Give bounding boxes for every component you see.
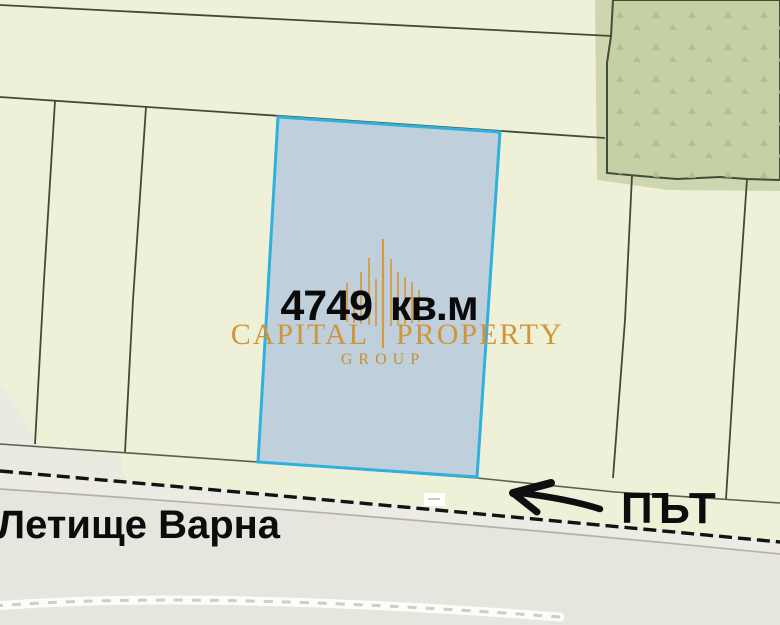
property-map-screenshot: 4749 кв.м CAPITAL PROPERTY GROUP Летище … (0, 0, 780, 625)
road-marker-box (424, 493, 445, 506)
forest-tree-pattern (607, 0, 780, 180)
watermark-brand-subtitle: GROUP (283, 352, 483, 368)
road-label: ПЪТ (621, 487, 715, 531)
watermark-brand-first: CAPITAL (150, 320, 369, 350)
watermark-brand-second: PROPERTY (396, 320, 564, 350)
airport-label: Летище Варна (0, 505, 280, 545)
